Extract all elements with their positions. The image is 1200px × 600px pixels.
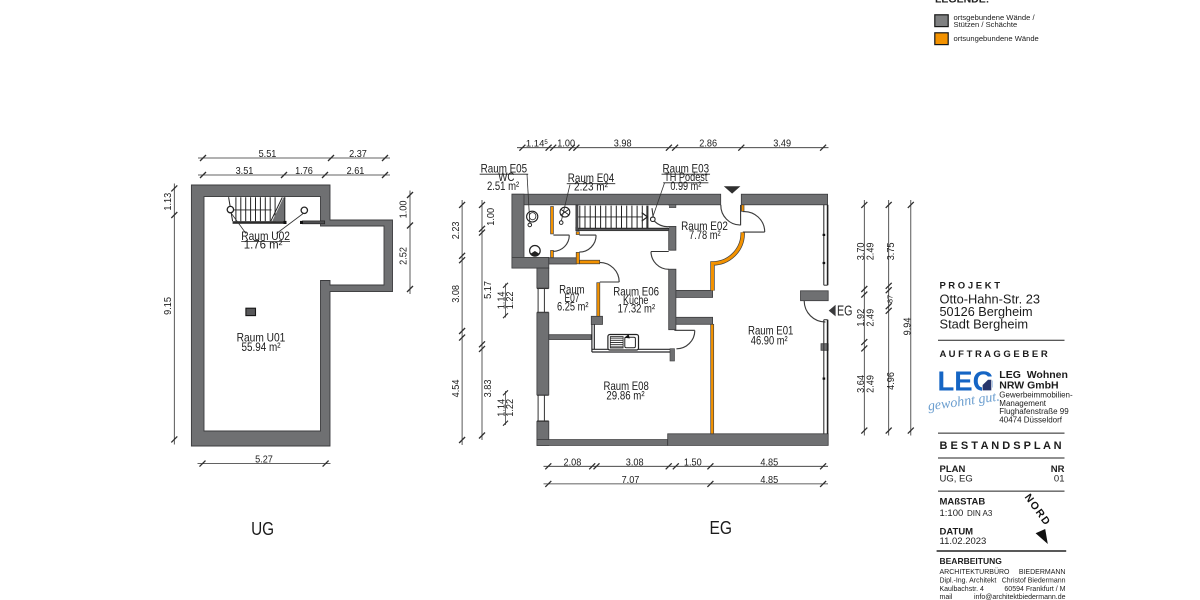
svg-text:29.86 m²: 29.86 m²: [606, 389, 644, 403]
svg-text:4.54: 4.54: [451, 379, 462, 397]
svg-text:55.94 m²: 55.94 m²: [242, 340, 281, 354]
svg-text:4.85: 4.85: [760, 475, 778, 486]
svg-text:5.27: 5.27: [255, 455, 273, 466]
svg-text:1.76: 1.76: [295, 166, 313, 177]
svg-text:A U F T R A G G E B E R: A U F T R A G G E B E R: [940, 349, 1048, 360]
svg-text:9.15: 9.15: [163, 297, 174, 315]
svg-text:3.08: 3.08: [626, 457, 644, 468]
svg-text:3.75: 3.75: [886, 242, 897, 260]
svg-text:2.37: 2.37: [349, 149, 367, 160]
svg-text:9.94: 9.94: [903, 317, 914, 335]
svg-text:60594 Frankfurt / M: 60594 Frankfurt / M: [1004, 586, 1065, 593]
svg-text:1.22: 1.22: [505, 291, 516, 309]
svg-text:1.22: 1.22: [505, 399, 516, 417]
svg-text:5.51: 5.51: [259, 149, 277, 160]
svg-text:1.50: 1.50: [684, 457, 702, 468]
svg-text:3.98: 3.98: [614, 139, 632, 150]
svg-text:1.00: 1.00: [486, 208, 497, 226]
svg-text:ortsungebundene Wände: ortsungebundene Wände: [954, 34, 1039, 43]
svg-text:1.00: 1.00: [399, 200, 410, 218]
svg-text:7.07: 7.07: [622, 475, 640, 486]
svg-text:6.25 m²: 6.25 m²: [557, 300, 589, 314]
svg-text:2.23: 2.23: [451, 221, 462, 239]
svg-text:Dipl.-Ing. Architekt: Dipl.-Ing. Architekt: [940, 578, 997, 585]
svg-text:4.96: 4.96: [886, 372, 897, 390]
svg-text:3.83: 3.83: [483, 379, 494, 397]
svg-text:87: 87: [886, 295, 895, 303]
svg-text:5.17: 5.17: [483, 281, 494, 299]
svg-text:MAßSTAB: MAßSTAB: [940, 497, 986, 508]
svg-text:B E S T A N D S P L A N: B E S T A N D S P L A N: [940, 440, 1062, 452]
svg-text:LEGENDE:: LEGENDE:: [935, 0, 989, 5]
svg-text:46.90 m²: 46.90 m²: [751, 334, 788, 348]
svg-text:2.61: 2.61: [347, 166, 365, 177]
svg-text:3.08: 3.08: [451, 285, 462, 303]
svg-text:BEARBEITUNG: BEARBEITUNG: [940, 556, 1003, 566]
svg-text:3.51: 3.51: [236, 166, 254, 177]
svg-text:3.49: 3.49: [773, 139, 791, 150]
svg-text:EG: EG: [710, 517, 733, 538]
svg-text:40474 Düsseldorf: 40474 Düsseldorf: [999, 415, 1062, 424]
svg-text:17.32 m²: 17.32 m²: [618, 302, 656, 316]
svg-text:Stützen / Schächte: Stützen / Schächte: [954, 20, 1018, 29]
svg-text:2.49: 2.49: [865, 309, 876, 327]
svg-text:UG, EG: UG, EG: [940, 474, 973, 485]
svg-text:BIEDERMANN: BIEDERMANN: [1019, 569, 1066, 576]
svg-text:Christof Biedermann: Christof Biedermann: [1002, 578, 1066, 585]
svg-text:1:100: 1:100: [940, 508, 964, 519]
svg-text:ARCHITEKTURBÜRO: ARCHITEKTURBÜRO: [940, 568, 1011, 576]
svg-text:11.02.2023: 11.02.2023: [940, 536, 987, 547]
svg-text:1.00: 1.00: [557, 139, 575, 150]
svg-text:P R O J E K T: P R O J E K T: [940, 281, 1001, 292]
svg-text:4.85: 4.85: [760, 457, 778, 468]
svg-text:2.49: 2.49: [865, 242, 876, 260]
svg-text:2.23 m²: 2.23 m²: [574, 180, 608, 194]
svg-text:Kaulbachstr. 4: Kaulbachstr. 4: [940, 586, 984, 593]
svg-text:1.13: 1.13: [163, 193, 174, 211]
svg-text:2.08: 2.08: [564, 457, 582, 468]
svg-text:1.76 m²: 1.76 m²: [244, 238, 283, 252]
svg-text:mail: mail: [940, 594, 953, 600]
svg-text:EG: EG: [837, 304, 853, 320]
svg-text:2.51 m²: 2.51 m²: [487, 179, 519, 193]
svg-text:info@architektbiedermann.de: info@architektbiedermann.de: [974, 594, 1066, 600]
svg-text:Stadt Bergheim: Stadt Bergheim: [940, 318, 1029, 332]
svg-text:7.78 m²: 7.78 m²: [689, 228, 721, 242]
svg-text:01: 01: [1054, 474, 1065, 485]
svg-text:DIN A3: DIN A3: [967, 509, 993, 518]
svg-text:2.52: 2.52: [399, 247, 410, 265]
svg-text:0.99 m²: 0.99 m²: [670, 179, 701, 193]
svg-text:UG: UG: [251, 518, 274, 539]
svg-text:2.86: 2.86: [699, 139, 717, 150]
svg-text:2.49: 2.49: [865, 375, 876, 393]
